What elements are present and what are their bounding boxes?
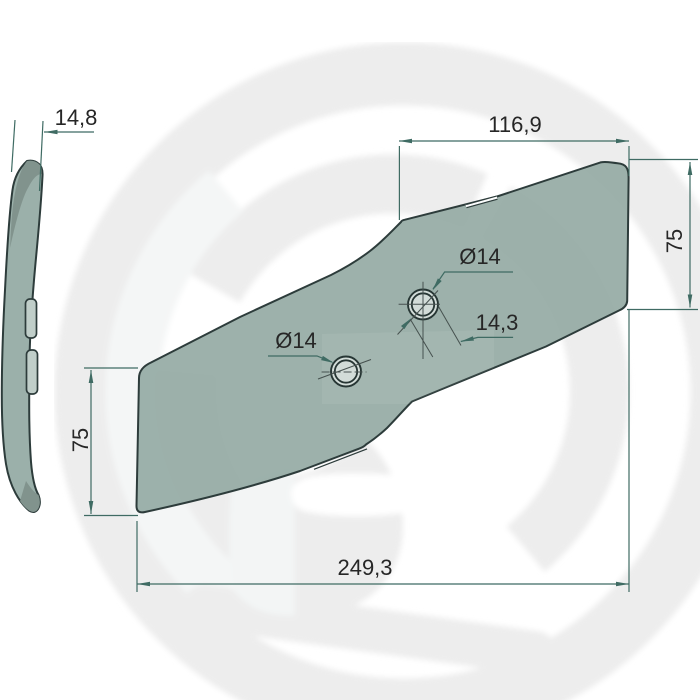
svg-text:116,9: 116,9 — [488, 112, 541, 137]
svg-text:249,3: 249,3 — [337, 555, 392, 580]
svg-text:75: 75 — [68, 428, 93, 452]
svg-text:Ø14: Ø14 — [275, 328, 317, 353]
svg-text:Ø14: Ø14 — [459, 244, 501, 269]
svg-text:14,8: 14,8 — [55, 105, 98, 130]
svg-text:14,3: 14,3 — [476, 310, 519, 335]
svg-text:75: 75 — [662, 229, 687, 253]
